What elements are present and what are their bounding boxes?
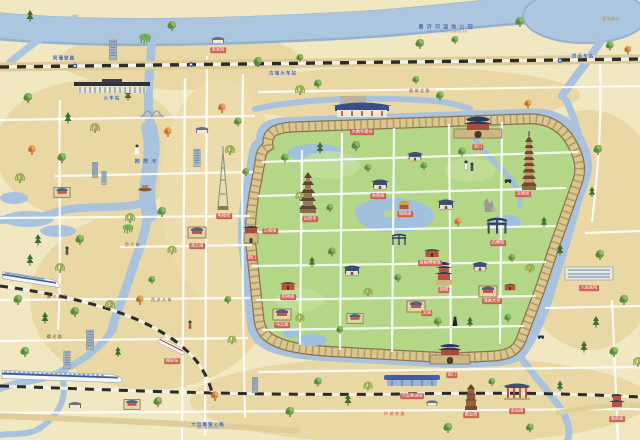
bus-station: [384, 375, 440, 386]
west-temple: [280, 282, 296, 290]
tower-block: [64, 351, 70, 369]
tower-block: [102, 171, 107, 184]
hospital-building: [565, 267, 613, 280]
mosque-courtyard: [479, 286, 497, 297]
tree-r: [20, 347, 29, 357]
tree-r: [609, 347, 618, 357]
west-temple-yard: [54, 188, 70, 198]
tower-block: [86, 330, 93, 350]
west-gate-tower: [243, 226, 259, 243]
tree-r: [415, 39, 424, 49]
map-canvas: [0, 0, 640, 440]
tree-a: [624, 46, 631, 55]
small-temple: [188, 227, 206, 238]
tree-p: [27, 254, 34, 266]
tree-r: [451, 36, 458, 44]
gray-tower: [109, 40, 116, 60]
tower-block: [252, 377, 258, 392]
golden-pavilion: [398, 201, 410, 210]
tree-r: [606, 42, 614, 51]
temple-hall: [504, 284, 517, 290]
drum-tower-yard: [347, 314, 363, 324]
tourist-map: 惠济河湿地公园HUIJIHE SHIDI GONGYUAN柳根河湿地渡口同蒲铁路…: [0, 0, 640, 440]
tree-p: [35, 234, 42, 246]
car: [538, 336, 544, 339]
south-courtyard: [68, 402, 82, 408]
south-courtyard: [124, 400, 140, 410]
tree-w: [634, 357, 640, 367]
sw-temple: [273, 309, 291, 320]
tower-block: [92, 162, 98, 177]
office-building: [194, 149, 200, 167]
confucius-temple: [407, 301, 425, 312]
county-yamen: [424, 249, 440, 257]
tree-r: [13, 295, 22, 305]
tree-r: [153, 397, 162, 407]
